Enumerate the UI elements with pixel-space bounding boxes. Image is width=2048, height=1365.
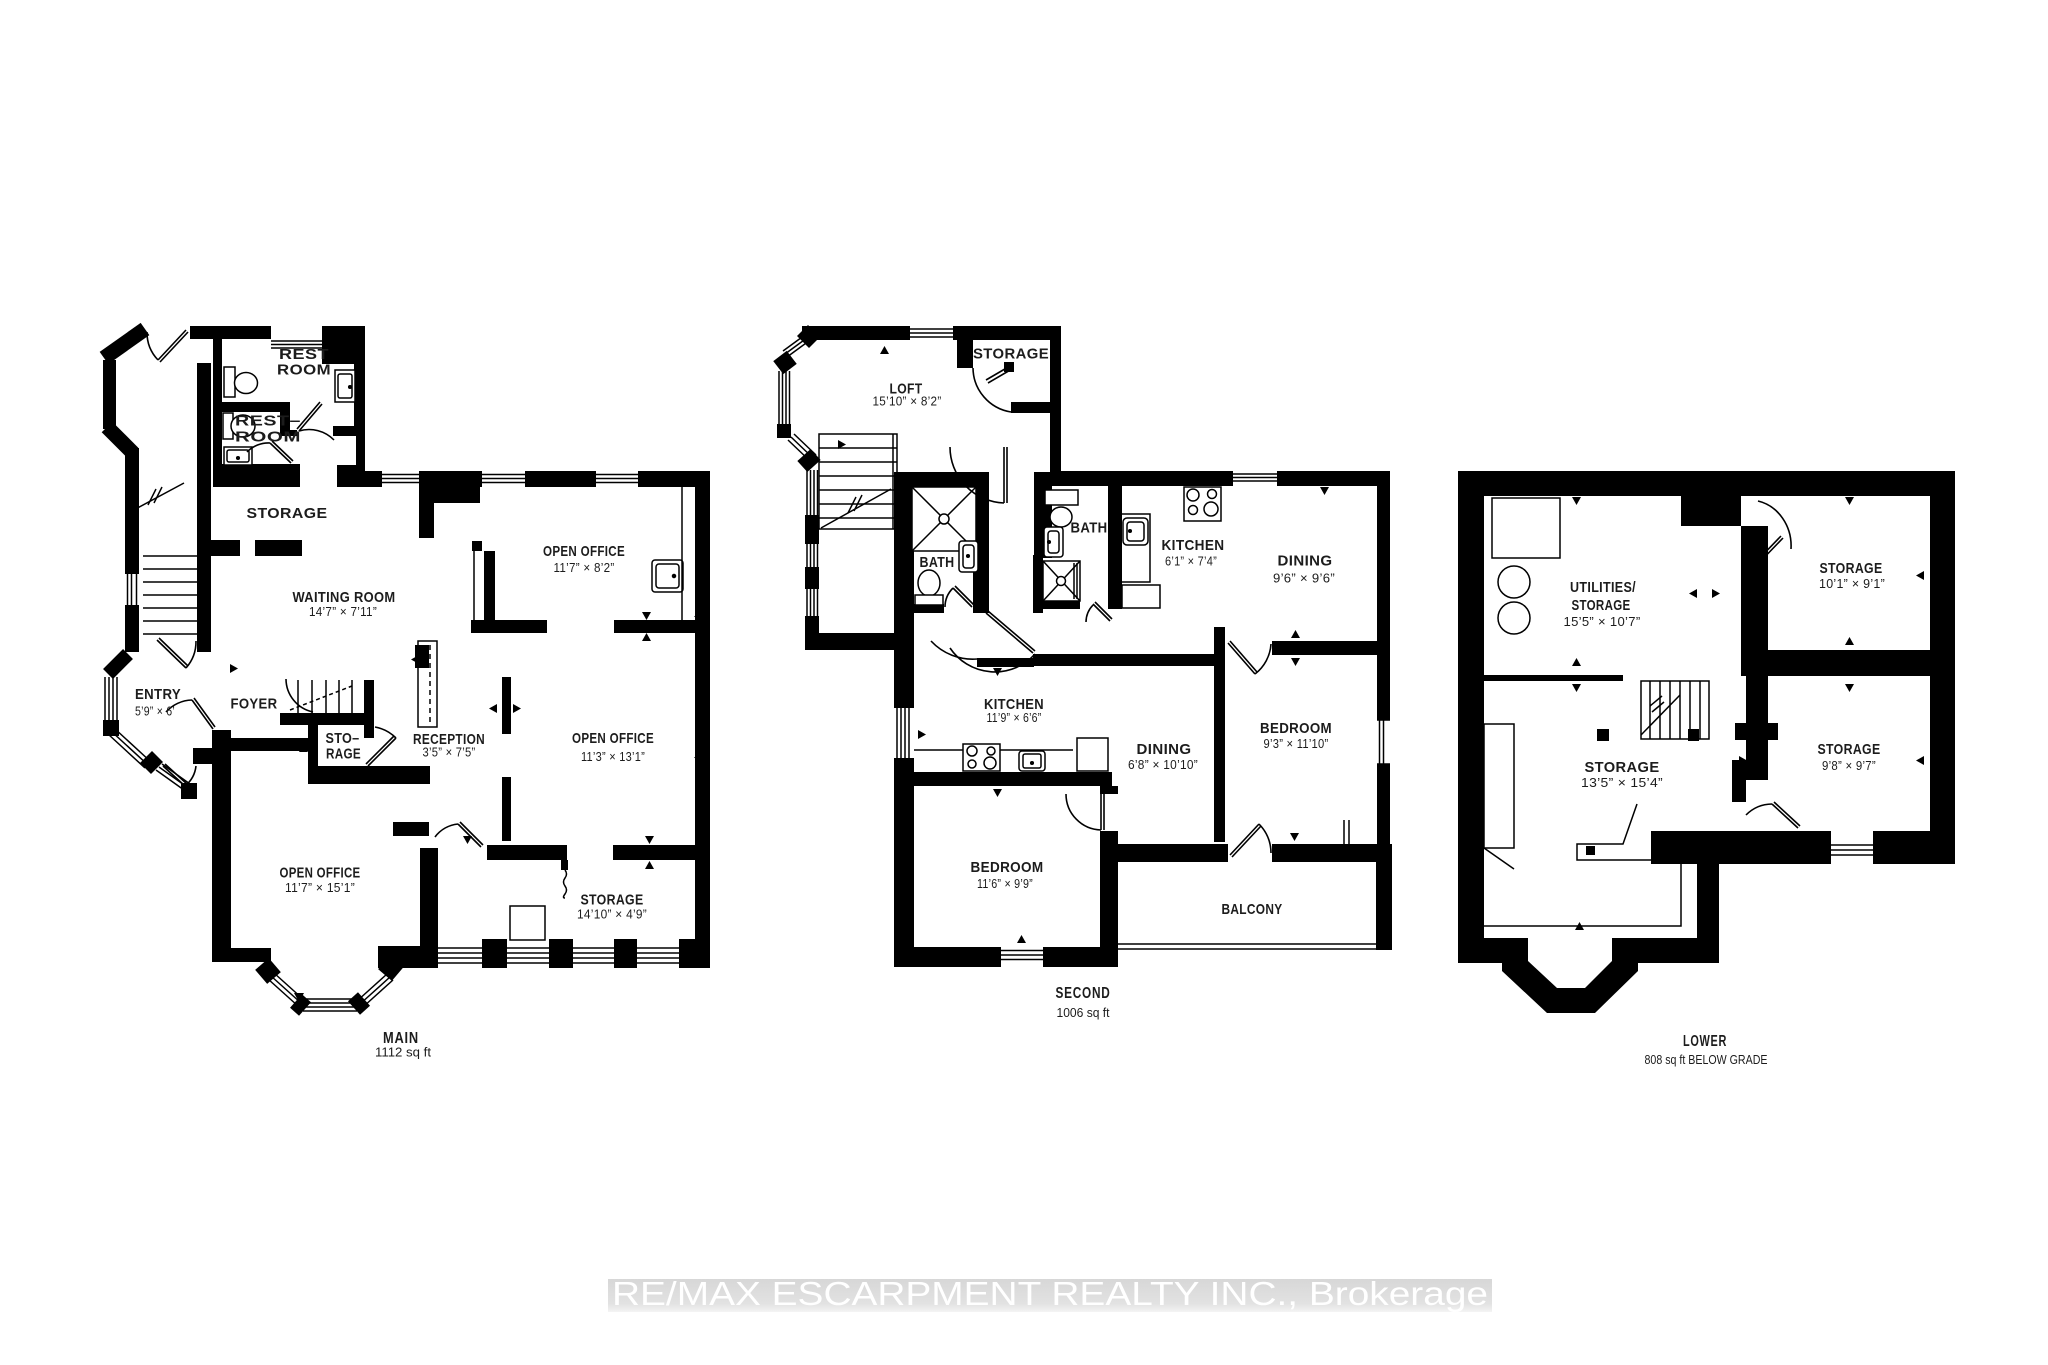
svg-text:11’9” × 6’6”: 11’9” × 6’6” xyxy=(987,710,1042,725)
svg-text:1112 sq ft: 1112 sq ft xyxy=(375,1045,431,1060)
svg-text:15’10” × 8’2”: 15’10” × 8’2” xyxy=(873,394,942,409)
svg-text:6’1” × 7’4”: 6’1” × 7’4” xyxy=(1165,554,1217,569)
svg-text:BEDROOM: BEDROOM xyxy=(1260,720,1332,737)
svg-text:ROOM: ROOM xyxy=(235,429,301,446)
svg-text:BEDROOM: BEDROOM xyxy=(971,859,1044,876)
svg-text:STORAGE: STORAGE xyxy=(973,346,1049,363)
svg-text:STO–: STO– xyxy=(326,730,360,747)
svg-text:REST–: REST– xyxy=(235,413,301,430)
svg-text:9’6” × 9’6”: 9’6” × 9’6” xyxy=(1273,571,1335,586)
svg-text:UTILITIES/: UTILITIES/ xyxy=(1570,579,1636,596)
svg-text:RE/MAX ESCARPMENT REALTY INC.,: RE/MAX ESCARPMENT REALTY INC., Brokerage xyxy=(612,1275,1488,1312)
svg-text:9’8” × 9’7”: 9’8” × 9’7” xyxy=(1822,758,1876,773)
svg-text:OPEN OFFICE: OPEN OFFICE xyxy=(543,543,625,560)
svg-text:SECOND: SECOND xyxy=(1056,985,1111,1002)
svg-text:STORAGE: STORAGE xyxy=(247,505,328,522)
svg-text:BATH: BATH xyxy=(920,554,955,571)
svg-text:808 sq ft BELOW GRADE: 808 sq ft BELOW GRADE xyxy=(1645,1052,1768,1067)
svg-text:DINING: DINING xyxy=(1278,553,1333,570)
svg-text:10’1” × 9’1”: 10’1” × 9’1” xyxy=(1819,576,1885,591)
svg-text:1006 sq ft: 1006 sq ft xyxy=(1057,1005,1110,1020)
svg-text:14’7” × 7’11”: 14’7” × 7’11” xyxy=(309,604,377,619)
svg-text:STORAGE: STORAGE xyxy=(1585,759,1660,776)
svg-text:ENTRY: ENTRY xyxy=(135,686,181,703)
svg-text:STORAGE: STORAGE xyxy=(1820,560,1883,577)
svg-text:STORAGE: STORAGE xyxy=(1572,597,1631,614)
svg-text:3’5” × 7’5”: 3’5” × 7’5” xyxy=(423,745,476,760)
svg-text:OPEN OFFICE: OPEN OFFICE xyxy=(572,730,654,747)
svg-text:ROOM: ROOM xyxy=(277,362,331,379)
svg-text:OPEN OFFICE: OPEN OFFICE xyxy=(280,865,361,882)
svg-text:BATH: BATH xyxy=(1071,520,1108,537)
svg-text:RAGE: RAGE xyxy=(326,746,361,763)
svg-text:5’9” × 6’: 5’9” × 6’ xyxy=(135,704,175,719)
svg-text:STORAGE: STORAGE xyxy=(1818,741,1881,758)
svg-text:LOWER: LOWER xyxy=(1683,1033,1727,1050)
svg-text:13’5” × 15’4”: 13’5” × 15’4” xyxy=(1581,775,1663,790)
svg-text:14’10” × 4’9”: 14’10” × 4’9” xyxy=(577,907,647,922)
svg-text:BALCONY: BALCONY xyxy=(1222,901,1283,918)
svg-text:REST: REST xyxy=(279,346,329,363)
svg-text:9’3” × 11’10”: 9’3” × 11’10” xyxy=(1264,736,1329,751)
svg-text:11’7” × 8’2”: 11’7” × 8’2” xyxy=(554,560,615,575)
svg-text:6’8” × 10’10”: 6’8” × 10’10” xyxy=(1128,757,1198,772)
svg-text:DINING: DINING xyxy=(1137,741,1192,758)
svg-text:11’6” × 9’9”: 11’6” × 9’9” xyxy=(977,876,1033,891)
svg-text:15’5” × 10’7”: 15’5” × 10’7” xyxy=(1564,614,1641,629)
svg-text:KITCHEN: KITCHEN xyxy=(1162,537,1225,554)
svg-text:FOYER: FOYER xyxy=(231,696,278,713)
svg-text:11’3” × 13’1”: 11’3” × 13’1” xyxy=(581,749,645,764)
svg-text:11’7” × 15’1”: 11’7” × 15’1” xyxy=(285,880,355,895)
